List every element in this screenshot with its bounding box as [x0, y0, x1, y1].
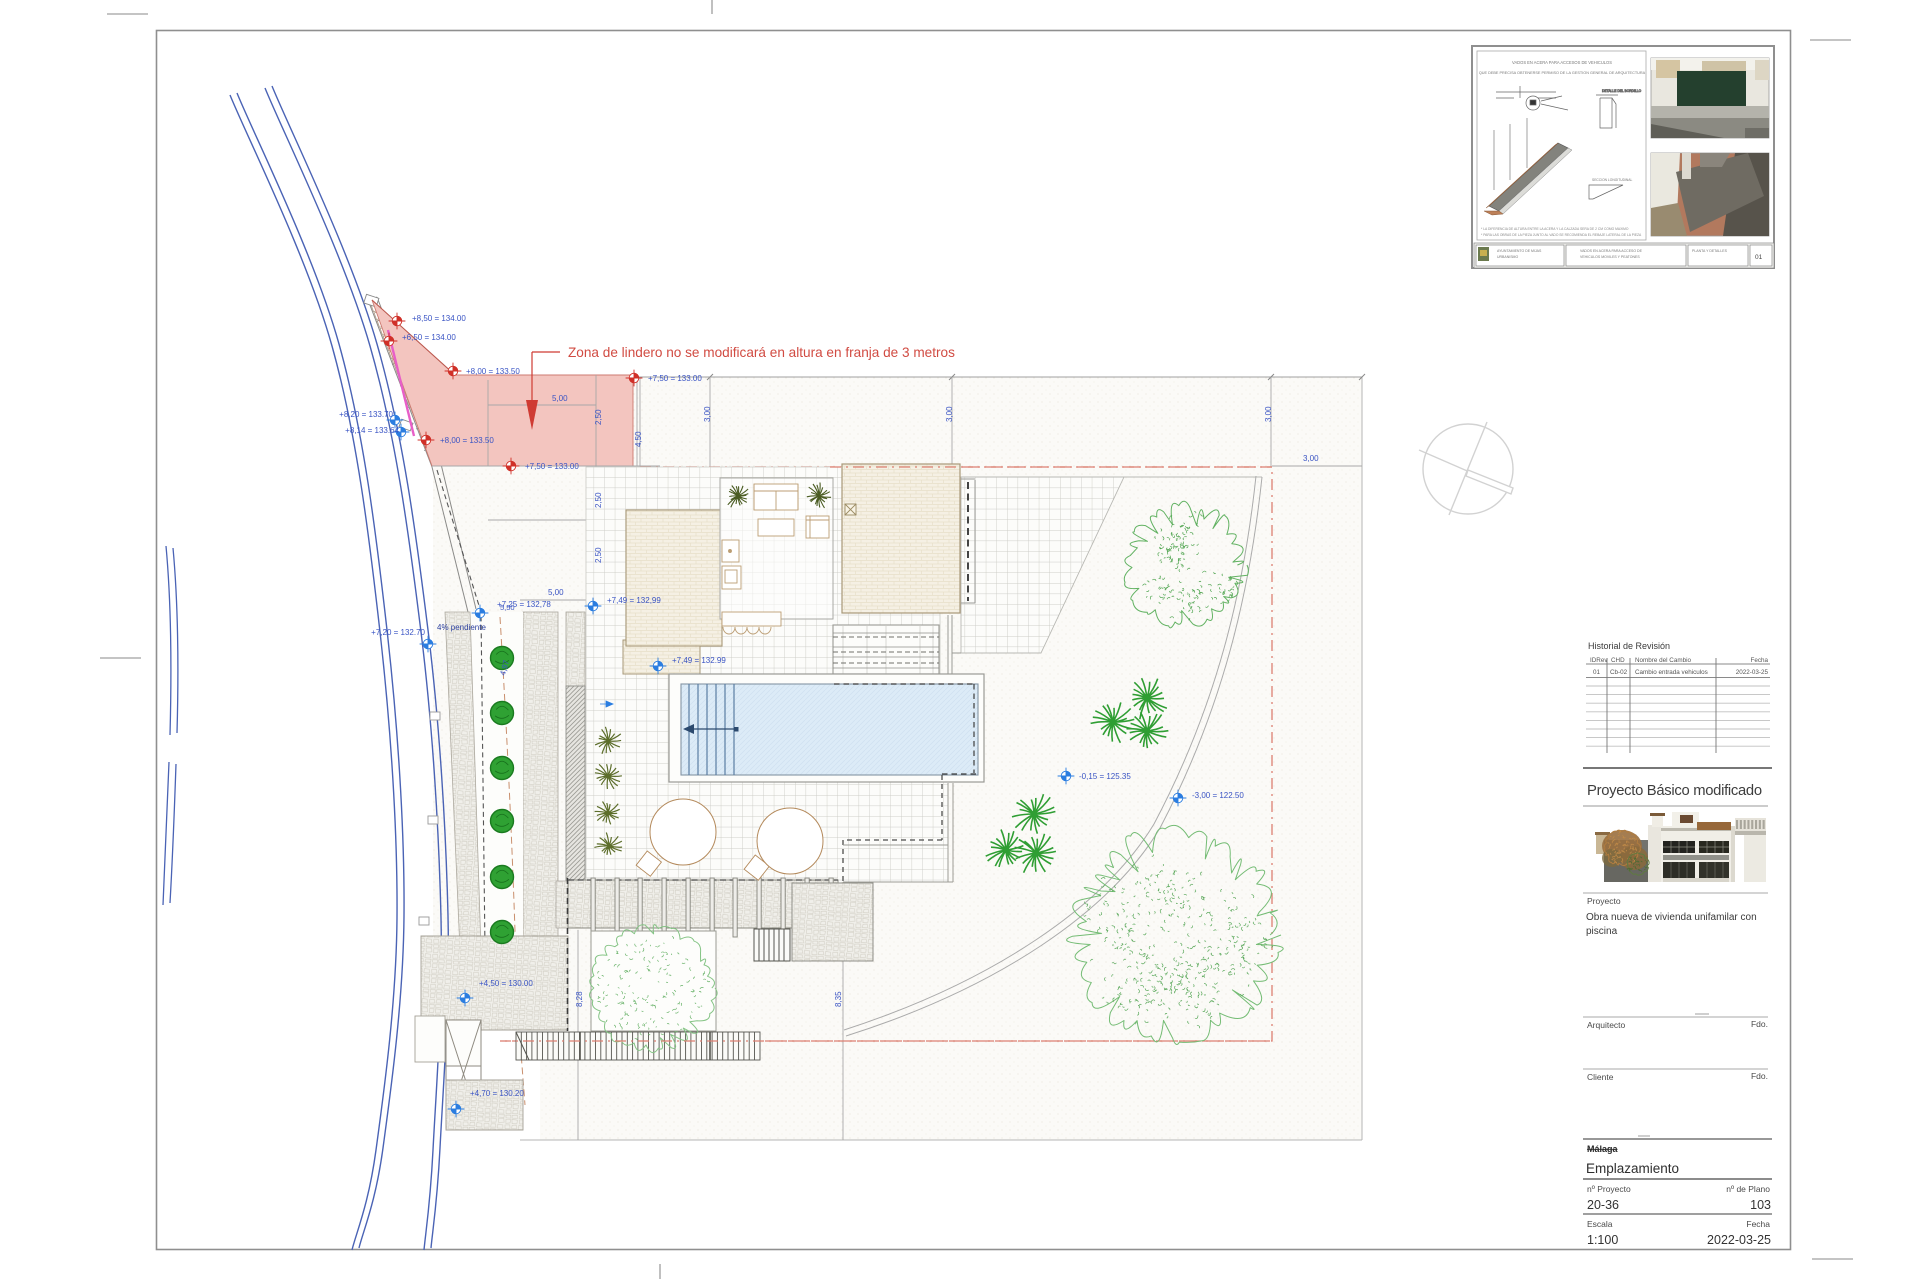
svg-text:2,50: 2,50: [594, 409, 603, 425]
svg-text:Fecha: Fecha: [1750, 657, 1768, 664]
svg-text:Fdo.: Fdo.: [1751, 1019, 1768, 1029]
svg-text:+8,00 = 133.50: +8,00 = 133.50: [466, 367, 520, 376]
svg-text:URBANISMO: URBANISMO: [1497, 255, 1518, 259]
svg-text:5,50: 5,50: [500, 603, 515, 612]
svg-text:+4,50 = 130.00: +4,50 = 130.00: [479, 979, 533, 988]
svg-text:Proyecto: Proyecto: [1587, 896, 1621, 906]
svg-text:* PARA LAS OBRAS DE LA PIEZA J: * PARA LAS OBRAS DE LA PIEZA JUNTO AL VA…: [1481, 233, 1642, 237]
svg-text:Fecha: Fecha: [1746, 1219, 1770, 1229]
svg-text:-0,15 = 125.35: -0,15 = 125.35: [1079, 772, 1131, 781]
svg-text:Zona de lindero no se modifica: Zona de lindero no se modificará en altu…: [568, 345, 955, 360]
svg-text:+7,50 = 133.00: +7,50 = 133.00: [525, 462, 579, 471]
svg-text:+6,50 = 134.00: +6,50 = 134.00: [402, 333, 456, 342]
svg-text:1:100: 1:100: [1587, 1233, 1618, 1247]
svg-text:Arquitecto: Arquitecto: [1587, 1020, 1626, 1030]
svg-text:Fdo.: Fdo.: [1751, 1071, 1768, 1081]
svg-text:+4,70 = 130.20: +4,70 = 130.20: [470, 1089, 524, 1098]
svg-text:* LA DIFERENCIA DE ALTURA ENTR: * LA DIFERENCIA DE ALTURA ENTRE LA ACERA…: [1481, 227, 1629, 231]
svg-text:+7,50 = 133.00: +7,50 = 133.00: [648, 374, 702, 383]
svg-text:+8,00 = 133.50: +8,00 = 133.50: [440, 436, 494, 445]
svg-text:+8,50 = 134.00: +8,50 = 134.00: [412, 314, 466, 323]
svg-text:Escala: Escala: [1587, 1219, 1613, 1229]
svg-text:nº de Plano: nº de Plano: [1726, 1184, 1770, 1194]
svg-text:01: 01: [1593, 669, 1601, 676]
svg-text:Proyecto Básico modificado: Proyecto Básico modificado: [1587, 783, 1762, 799]
svg-text:nº Proyecto: nº Proyecto: [1587, 1184, 1631, 1194]
svg-text:DETALLE DEL BORDILLO: DETALLE DEL BORDILLO: [1602, 89, 1642, 93]
svg-text:VADOS EN ACERA PARA ACCESO DE: VADOS EN ACERA PARA ACCESO DE: [1580, 249, 1643, 253]
svg-text:3,00: 3,00: [1264, 406, 1273, 422]
svg-text:Nombre del Cambio: Nombre del Cambio: [1635, 657, 1691, 664]
svg-text:SECCION LONGITUDINAL: SECCION LONGITUDINAL: [1592, 178, 1632, 182]
svg-text:PLANTA Y DETALLES: PLANTA Y DETALLES: [1692, 249, 1728, 253]
svg-text:+7,20 = 132.70: +7,20 = 132.70: [371, 628, 425, 637]
svg-text:+7,49 = 132,99: +7,49 = 132,99: [607, 596, 661, 605]
svg-text:3,00: 3,00: [703, 406, 712, 422]
svg-text:8,35: 8,35: [834, 991, 843, 1007]
svg-text:IDRev: IDRev: [1590, 657, 1608, 664]
svg-text:2022-03-25: 2022-03-25: [1707, 1233, 1771, 1247]
svg-text:Historial de Revisión: Historial de Revisión: [1588, 641, 1670, 651]
svg-text:AYUNTAMIENTO DE MIJAS: AYUNTAMIENTO DE MIJAS: [1497, 249, 1542, 253]
svg-text:VADOS EN ACERA PARA ACCESOS DE: VADOS EN ACERA PARA ACCESOS DE VEHICULOS: [1512, 60, 1612, 65]
svg-text:VEHICULOS MOVILES Y PEATONES: VEHICULOS MOVILES Y PEATONES: [1580, 255, 1640, 259]
svg-text:+8,20 = 133.70: +8,20 = 133.70: [339, 410, 393, 419]
svg-text:Cb-02: Cb-02: [1610, 669, 1628, 676]
svg-text:5,00: 5,00: [552, 394, 568, 403]
svg-text:CHD: CHD: [1611, 657, 1625, 664]
svg-text:Málaga: Málaga: [1587, 1144, 1619, 1154]
svg-text:Emplazamiento: Emplazamiento: [1586, 1161, 1679, 1176]
svg-text:2,50: 2,50: [594, 492, 603, 508]
svg-text:3,00: 3,00: [1303, 454, 1319, 463]
svg-text:2,50: 2,50: [594, 547, 603, 563]
svg-text:Cambio entrada vehiculos: Cambio entrada vehiculos: [1635, 669, 1708, 676]
svg-text:103: 103: [1750, 1198, 1771, 1212]
svg-text:-3,00 = 122.50: -3,00 = 122.50: [1192, 791, 1244, 800]
svg-text:3,00: 3,00: [945, 406, 954, 422]
svg-text:Obra nueva de vivienda unifami: Obra nueva de vivienda unifamilar con: [1586, 912, 1757, 923]
svg-text:piscina: piscina: [1586, 926, 1618, 937]
svg-text:QUE DEBE PRECISA OBTENERSE PER: QUE DEBE PRECISA OBTENERSE PERMISO DE LA…: [1479, 71, 1646, 75]
svg-text:8,28: 8,28: [575, 991, 584, 1007]
svg-text:5,00: 5,00: [548, 588, 564, 597]
svg-text:2022-03-25: 2022-03-25: [1736, 669, 1769, 676]
svg-text:20-36: 20-36: [1587, 1198, 1619, 1212]
svg-text:4,50: 4,50: [634, 431, 643, 447]
svg-text:+7,49 = 132.99: +7,49 = 132.99: [672, 656, 726, 665]
svg-text:4% pendiente: 4% pendiente: [437, 623, 486, 632]
svg-text:Cliente: Cliente: [1587, 1072, 1614, 1082]
svg-text:01: 01: [1755, 254, 1763, 261]
svg-text:+8,14 = 133.64: +8,14 = 133.64: [345, 426, 399, 435]
